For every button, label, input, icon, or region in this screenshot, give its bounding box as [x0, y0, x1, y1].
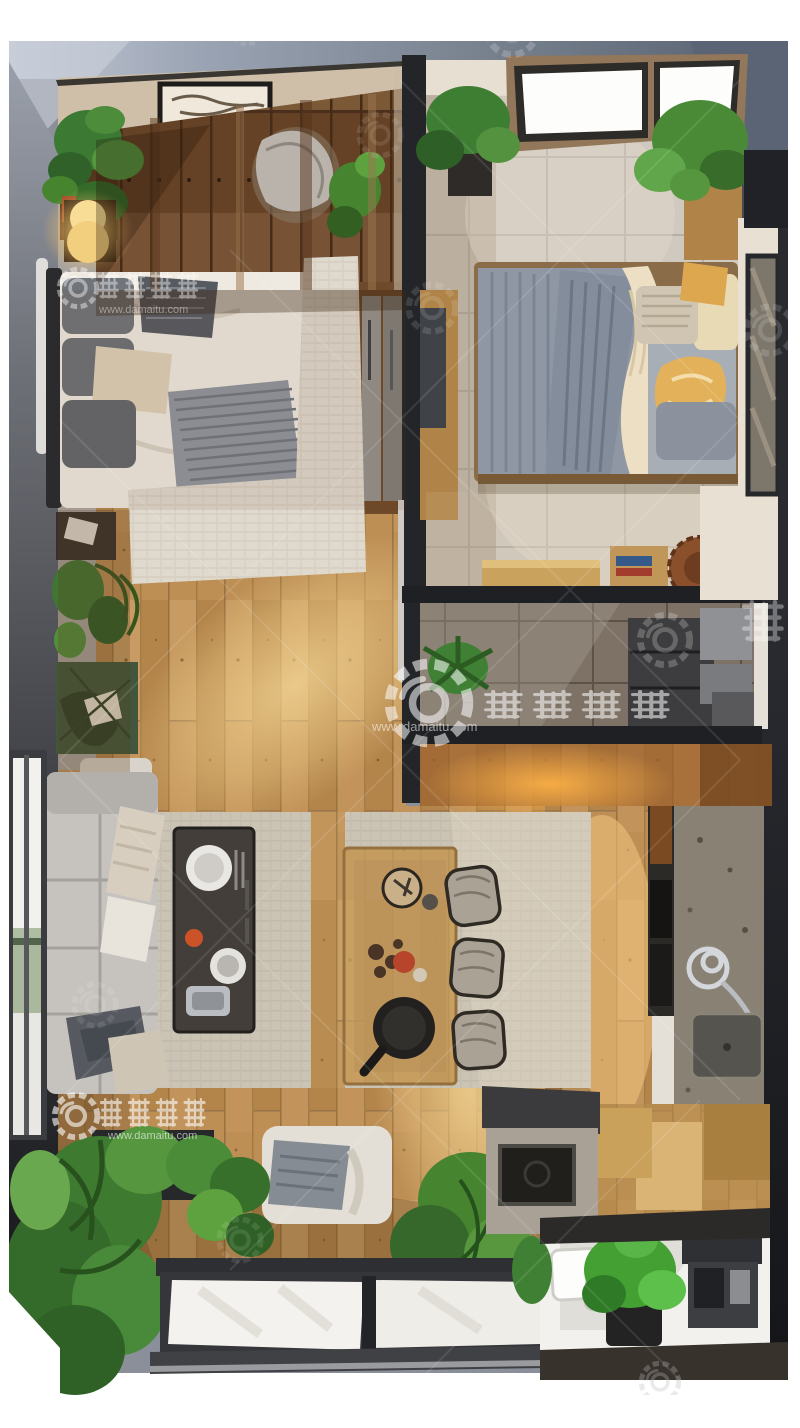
svg-text:www.damaitu.com: www.damaitu.com — [371, 719, 477, 734]
svg-text:www.damaitu.com: www.damaitu.com — [107, 1130, 197, 1142]
svg-text:www.damaitu.com: www.damaitu.com — [98, 304, 188, 316]
